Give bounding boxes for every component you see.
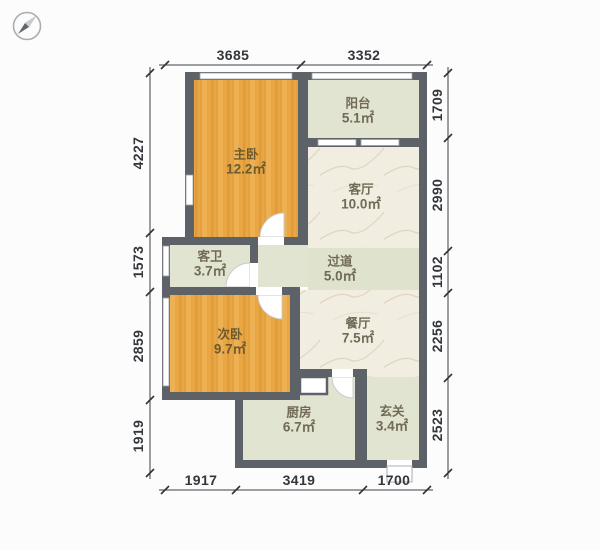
room-label-living-room: 客厅 10.0㎡ <box>341 182 381 211</box>
room-name: 餐厅 <box>342 316 374 330</box>
dim-right-2: 2990 <box>429 179 445 212</box>
wall-second-bedroom-bottom <box>162 392 300 400</box>
compass-icon <box>14 13 41 40</box>
room-area: 3.7㎡ <box>194 263 226 278</box>
room-label-master-bedroom: 主卧 12.2㎡ <box>226 147 266 176</box>
floor-plan-drawing <box>0 0 600 550</box>
room-name: 玄关 <box>376 404 408 418</box>
wall-right <box>419 72 427 468</box>
room-area: 12.2㎡ <box>226 161 266 176</box>
room-area: 5.1㎡ <box>342 110 374 125</box>
room-name: 客厅 <box>341 182 381 196</box>
dim-left-2: 1573 <box>130 246 146 279</box>
wall-kitchen-left <box>235 398 243 460</box>
wall-bathroom-top <box>162 237 308 245</box>
wall-entry-left <box>355 369 367 460</box>
room-area: 9.7㎡ <box>214 341 246 356</box>
room-label-kitchen: 厨房 6.7㎡ <box>283 405 315 434</box>
wall-master-living-divider <box>298 72 308 245</box>
kitchen-niche <box>300 377 327 394</box>
wall-dining-left <box>290 287 300 400</box>
room-label-dining-room: 餐厅 7.5㎡ <box>342 316 374 345</box>
dim-right-5: 2523 <box>429 409 445 442</box>
window-balcony-top <box>312 73 412 79</box>
room-name: 主卧 <box>226 147 266 161</box>
dim-bottom-3: 1700 <box>378 472 411 488</box>
window-second-bedroom-left <box>163 298 169 386</box>
guest-bathroom-door-opening <box>250 263 258 287</box>
room-label-guest-bathroom: 客卫 3.7㎡ <box>194 249 226 278</box>
dim-top-2: 3352 <box>348 47 381 63</box>
room-area: 5.0㎡ <box>324 268 356 283</box>
window-master-left <box>186 175 193 205</box>
room-label-hallway: 过道 5.0㎡ <box>324 254 356 283</box>
dim-top-1: 3685 <box>217 47 250 63</box>
kitchen-door-opening <box>332 369 353 377</box>
room-label-entryway: 玄关 3.4㎡ <box>376 404 408 433</box>
room-name: 过道 <box>324 254 356 268</box>
floor-plan-screenshot: 主卧 12.2㎡ 阳台 5.1㎡ 客厅 10.0㎡ 客卫 3.7㎡ 过道 5.0… <box>0 0 600 550</box>
room-name: 客卫 <box>194 249 226 263</box>
room-name: 阳台 <box>342 96 374 110</box>
second-bedroom-door-opening <box>256 287 282 295</box>
room-label-balcony: 阳台 5.1㎡ <box>342 96 374 125</box>
dim-bottom-2: 3419 <box>283 472 316 488</box>
dim-bottom-1: 1917 <box>185 472 218 488</box>
room-label-second-bedroom: 次卧 9.7㎡ <box>214 327 246 356</box>
dim-right-1: 1709 <box>429 89 445 122</box>
window-bathroom-left <box>163 246 169 276</box>
room-name: 次卧 <box>214 327 246 341</box>
master-bedroom-door-opening <box>258 237 284 245</box>
hallway-floor-left <box>258 245 308 287</box>
room-area: 7.5㎡ <box>342 330 374 345</box>
balcony-sliding-opening-2 <box>361 140 399 146</box>
dim-left-4: 1919 <box>130 420 146 453</box>
dim-right-3: 1102 <box>429 256 445 288</box>
room-area: 10.0㎡ <box>341 196 381 211</box>
wall-left-upper <box>185 72 194 245</box>
dim-left-3: 2859 <box>130 330 146 363</box>
balcony-sliding-opening-1 <box>318 140 356 146</box>
room-name: 厨房 <box>283 405 315 419</box>
dim-right-4: 2256 <box>429 320 445 353</box>
room-area: 3.4㎡ <box>376 418 408 433</box>
room-area: 6.7㎡ <box>283 419 315 434</box>
wall-balcony-divider <box>298 138 419 147</box>
dim-left-1: 4227 <box>130 137 146 170</box>
window-master-top <box>200 73 292 79</box>
